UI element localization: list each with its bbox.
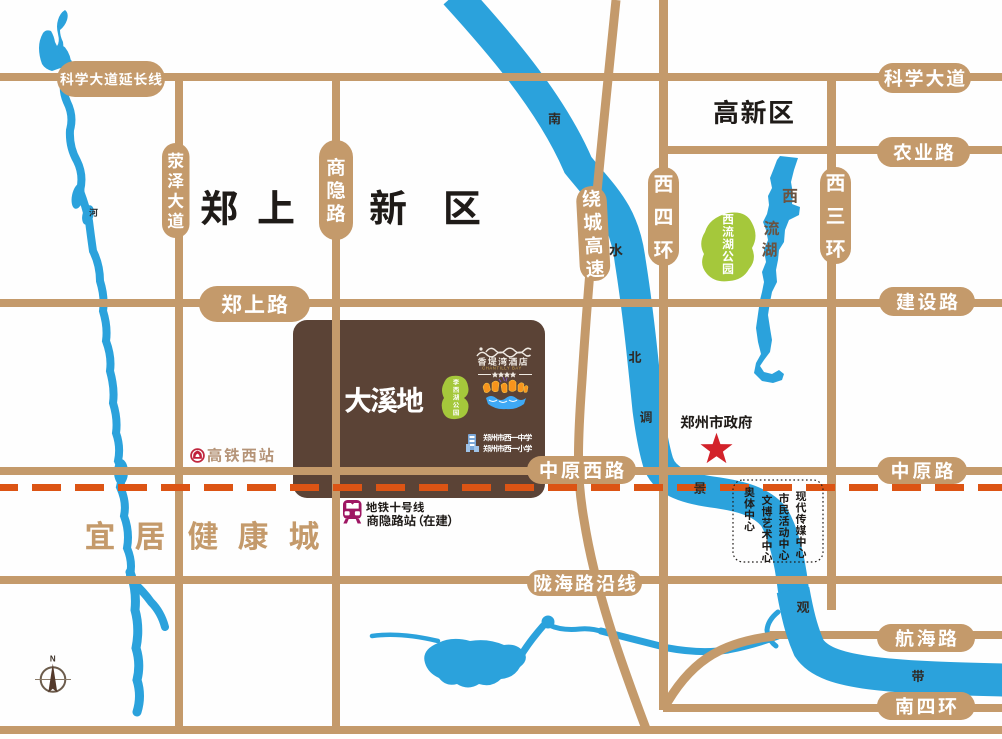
svg-text:N: N	[50, 655, 56, 664]
svg-text:CHANTILLY BAY: CHANTILLY BAY	[482, 366, 522, 371]
